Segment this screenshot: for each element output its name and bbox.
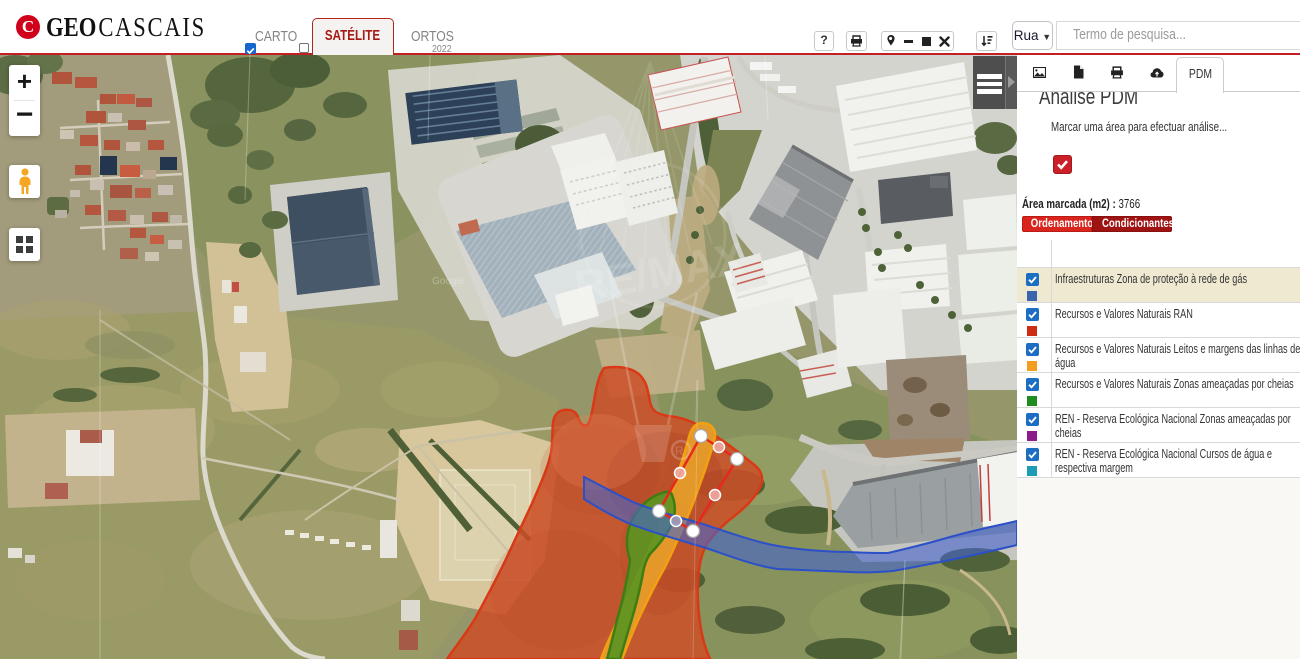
svg-text:Google: Google — [432, 276, 465, 287]
svg-text:R: R — [675, 444, 684, 458]
